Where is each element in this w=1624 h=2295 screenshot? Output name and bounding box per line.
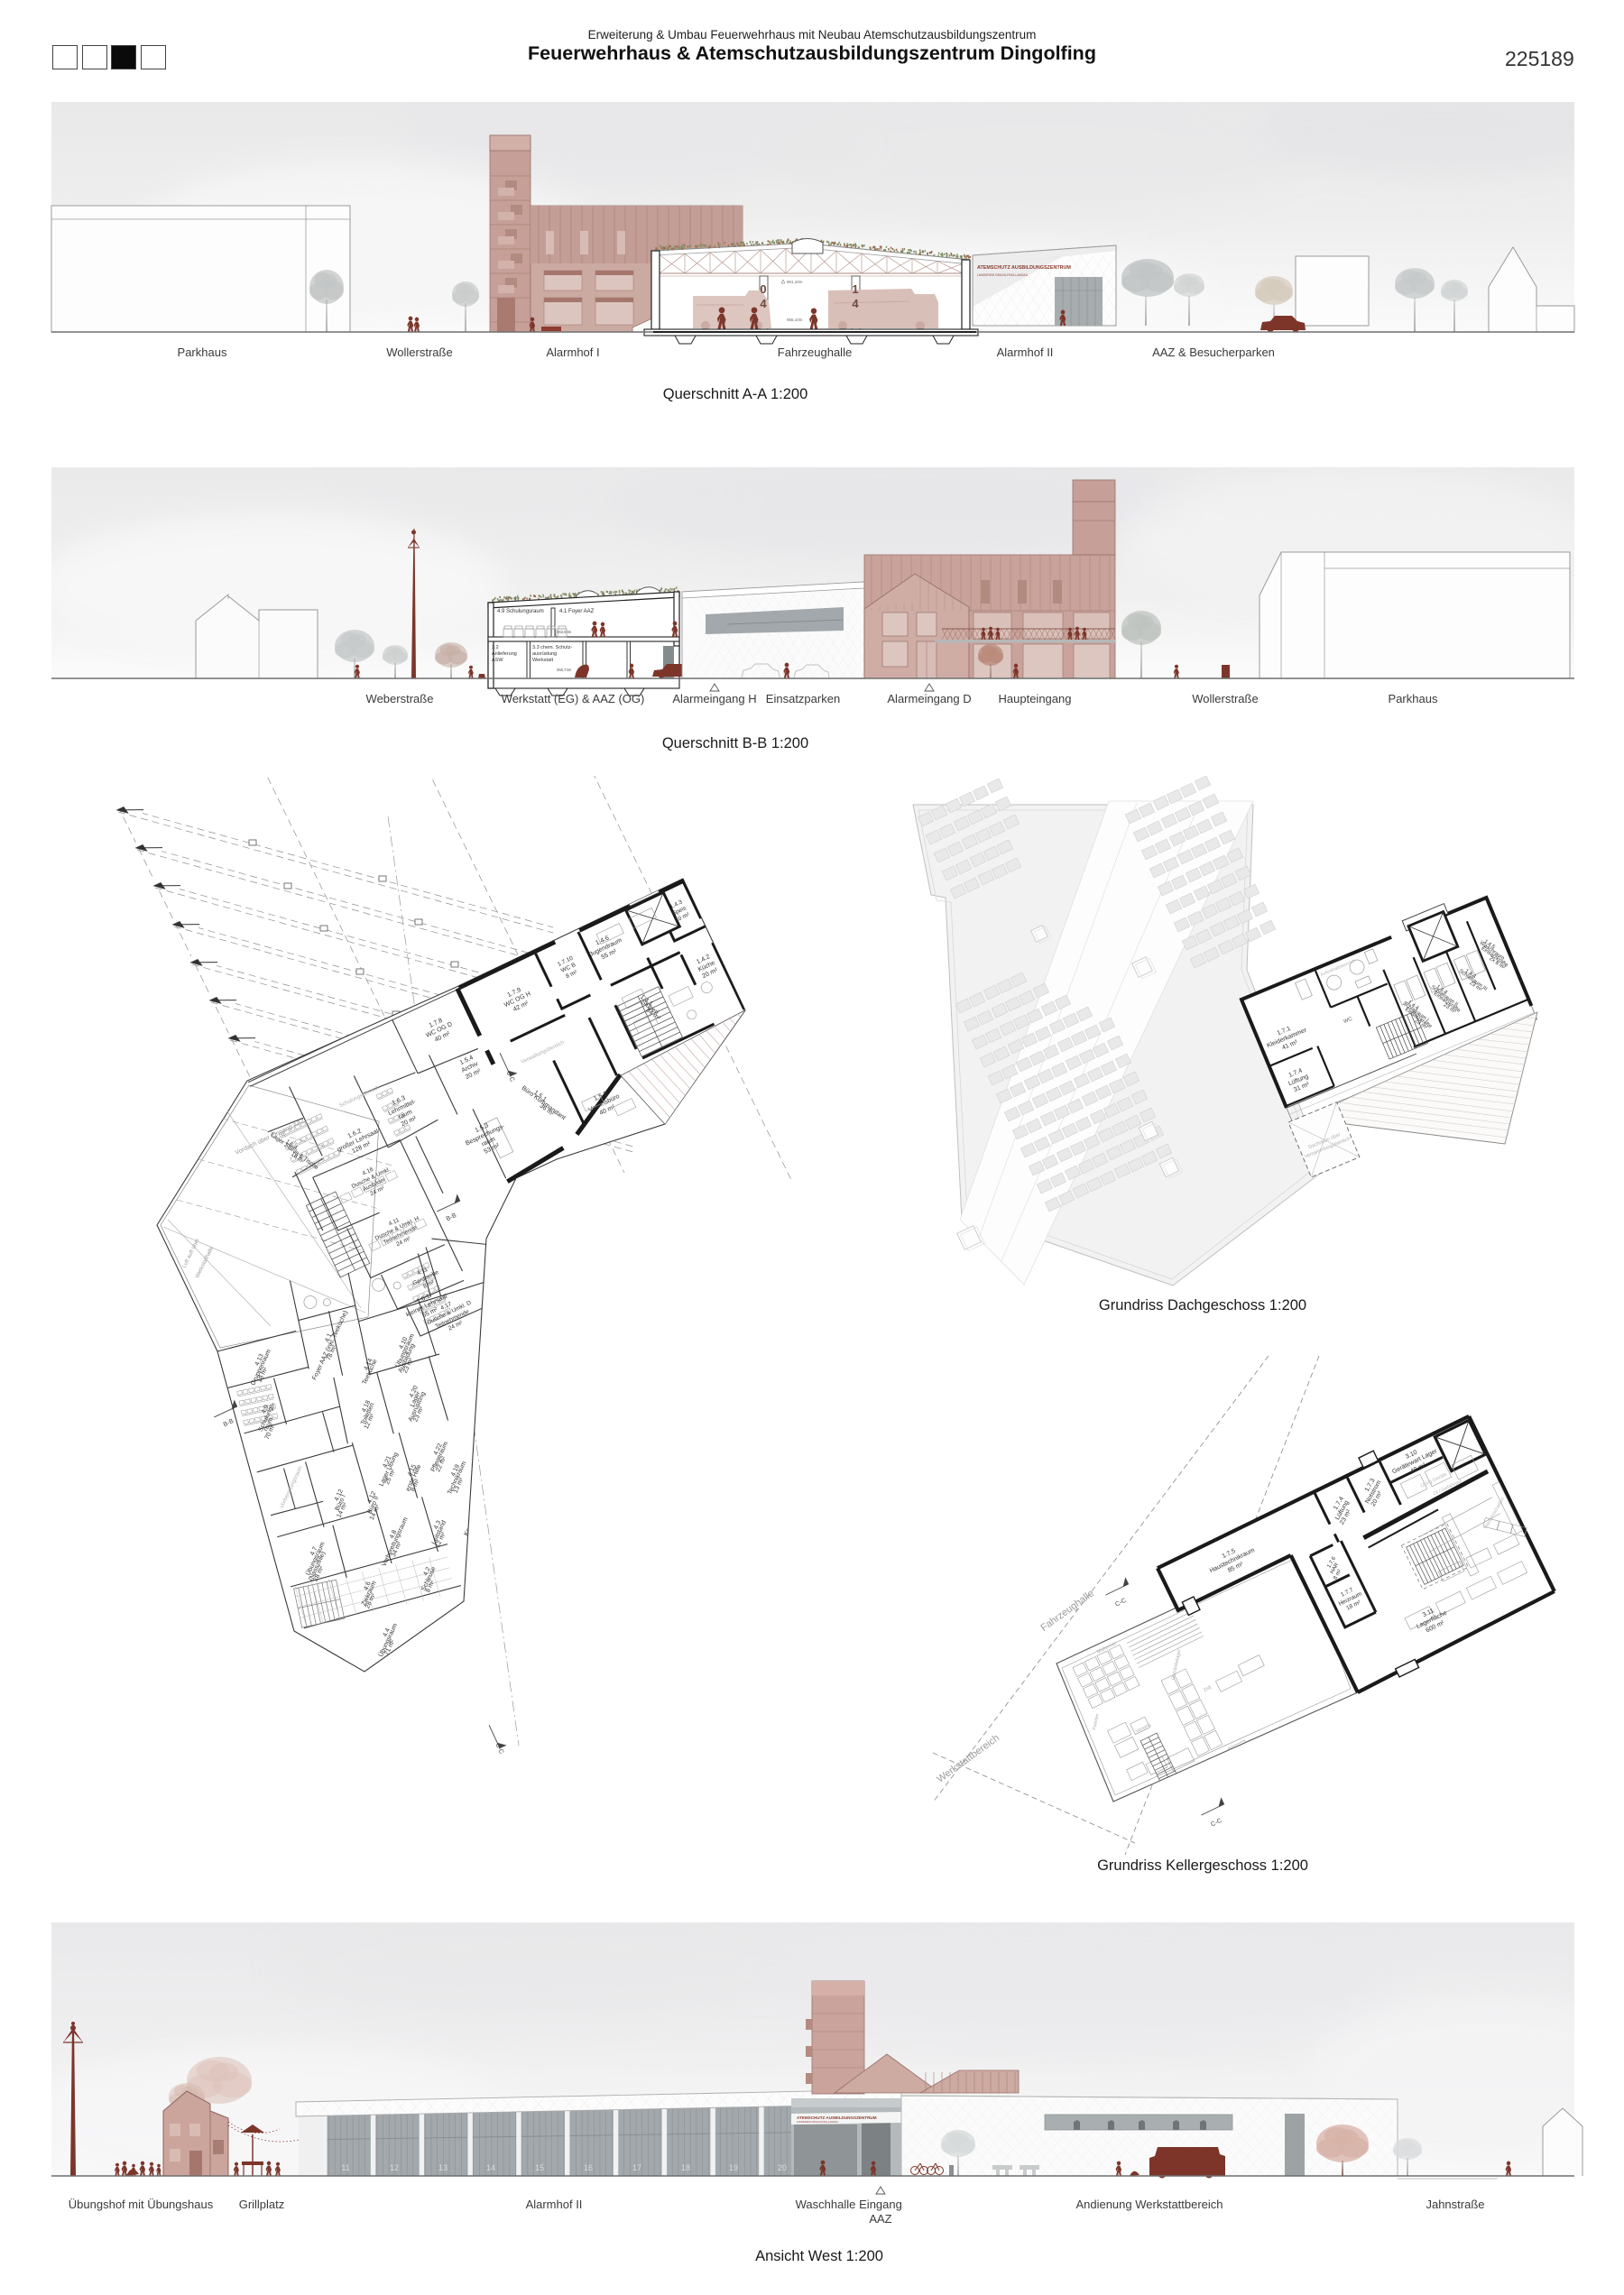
svg-text:Terrasse: Terrasse <box>689 1083 714 1100</box>
svg-text:Anlieferung: Anlieferung <box>492 651 517 657</box>
svg-text:20: 20 <box>778 2163 787 2172</box>
svg-text:Alarmeingang D: Alarmeingang D <box>887 692 971 705</box>
svg-text:B-B: B-B <box>223 1418 235 1428</box>
svg-text:Wollerstraße: Wollerstraße <box>1192 692 1258 705</box>
svg-text:AAZ & Besucherparken: AAZ & Besucherparken <box>1152 346 1275 359</box>
svg-text:955,10m: 955,10m <box>787 318 803 322</box>
svg-text:3.3 chem. Schutz-: 3.3 chem. Schutz- <box>532 645 572 650</box>
svg-text:14: 14 <box>486 2163 495 2172</box>
svg-text:Werkstatt (EG) & AAZ (OG): Werkstatt (EG) & AAZ (OG) <box>502 692 645 705</box>
svg-text:4.5: 4.5 <box>469 1503 479 1514</box>
svg-text:355,74m: 355,74m <box>557 668 572 672</box>
svg-text:C-C: C-C <box>1114 1598 1127 1608</box>
svg-text:ASW: ASW <box>492 658 503 663</box>
svg-text:Alarmhof II: Alarmhof II <box>526 2198 583 2211</box>
svg-text:Alarmhof I: Alarmhof I <box>546 346 599 359</box>
svg-text:Übungshof mit Übungshaus: Übungshof mit Übungshaus <box>69 2198 214 2211</box>
svg-text:Querschnitt B-B 1:200: Querschnitt B-B 1:200 <box>662 735 808 751</box>
svg-text:Alarmeingang H: Alarmeingang H <box>672 692 756 705</box>
svg-text:Jahnstraße: Jahnstraße <box>1426 2198 1484 2211</box>
svg-text:Einsatzparken: Einsatzparken <box>766 692 840 705</box>
svg-text:12: 12 <box>390 2163 399 2172</box>
svg-text:20 m²: 20 m² <box>471 1514 484 1532</box>
svg-text:16: 16 <box>584 2163 593 2172</box>
svg-text:Weberstraße: Weberstraße <box>366 692 434 705</box>
svg-text:11: 11 <box>341 2163 349 2172</box>
svg-text:0: 0 <box>760 282 766 296</box>
svg-text:Andienung Werkstattbereich: Andienung Werkstattbereich <box>1075 2198 1223 2211</box>
svg-text:Ansicht West 1:200: Ansicht West 1:200 <box>755 2248 883 2264</box>
svg-text:363,60m: 363,60m <box>557 630 572 634</box>
svg-text:Eingang: Eingang <box>859 2198 902 2211</box>
svg-text:ATEMSCHUTZ AUSBILDUNGSZENTRUM: ATEMSCHUTZ AUSBILDUNGSZENTRUM <box>977 265 1071 271</box>
svg-text:4.9 Schulungsraum: 4.9 Schulungsraum <box>497 609 544 614</box>
svg-text:AAZ: AAZ <box>869 2212 891 2226</box>
svg-text:Querschnitt A-A 1:200: Querschnitt A-A 1:200 <box>663 386 808 402</box>
svg-text:15: 15 <box>535 2163 544 2172</box>
svg-text:Parkhaus: Parkhaus <box>1389 692 1438 705</box>
svg-text:Alarmhof II: Alarmhof II <box>997 346 1054 359</box>
svg-text:41 m²: 41 m² <box>697 1092 715 1105</box>
svg-text:Grillplatz: Grillplatz <box>239 2198 285 2211</box>
svg-text:4.1 Foyer AAZ: 4.1 Foyer AAZ <box>559 609 595 614</box>
svg-text:LANDKREIS DINGOLFING-LANDAU: LANDKREIS DINGOLFING-LANDAU <box>797 2120 838 2124</box>
svg-text:1: 1 <box>852 282 858 296</box>
svg-text:4: 4 <box>760 297 767 310</box>
svg-text:Waschhalle: Waschhalle <box>796 2198 856 2211</box>
svg-text:Fahrzeughalle: Fahrzeughalle <box>1039 1588 1096 1634</box>
svg-text:19: 19 <box>729 2163 738 2172</box>
svg-text:Wollerstraße: Wollerstraße <box>386 346 452 359</box>
svg-text:ausrüstung: ausrüstung <box>532 651 557 657</box>
svg-text:13: 13 <box>438 2163 448 2172</box>
svg-text:C-C: C-C <box>494 1742 505 1755</box>
svg-text:Parkhaus: Parkhaus <box>178 346 227 359</box>
svg-text:Werkstatt: Werkstatt <box>532 658 554 663</box>
svg-text:Haupteingang: Haupteingang <box>999 692 1072 705</box>
svg-text:17: 17 <box>632 2163 641 2172</box>
svg-text:3.2: 3.2 <box>492 645 499 650</box>
svg-text:Grundriss Dachgeschoss 1:200: Grundriss Dachgeschoss 1:200 <box>1099 1297 1306 1313</box>
svg-text:4: 4 <box>852 297 859 310</box>
svg-text:961,10m: 961,10m <box>787 280 803 284</box>
svg-text:LANDKREIS DINGOLFING-LANDAU: LANDKREIS DINGOLFING-LANDAU <box>977 273 1029 277</box>
svg-text:Fahrzeughalle: Fahrzeughalle <box>778 346 852 359</box>
svg-text:C-C: C-C <box>1210 1818 1223 1829</box>
svg-text:Werkstattbereich: Werkstattbereich <box>935 1733 1001 1785</box>
svg-text:18: 18 <box>681 2163 690 2172</box>
